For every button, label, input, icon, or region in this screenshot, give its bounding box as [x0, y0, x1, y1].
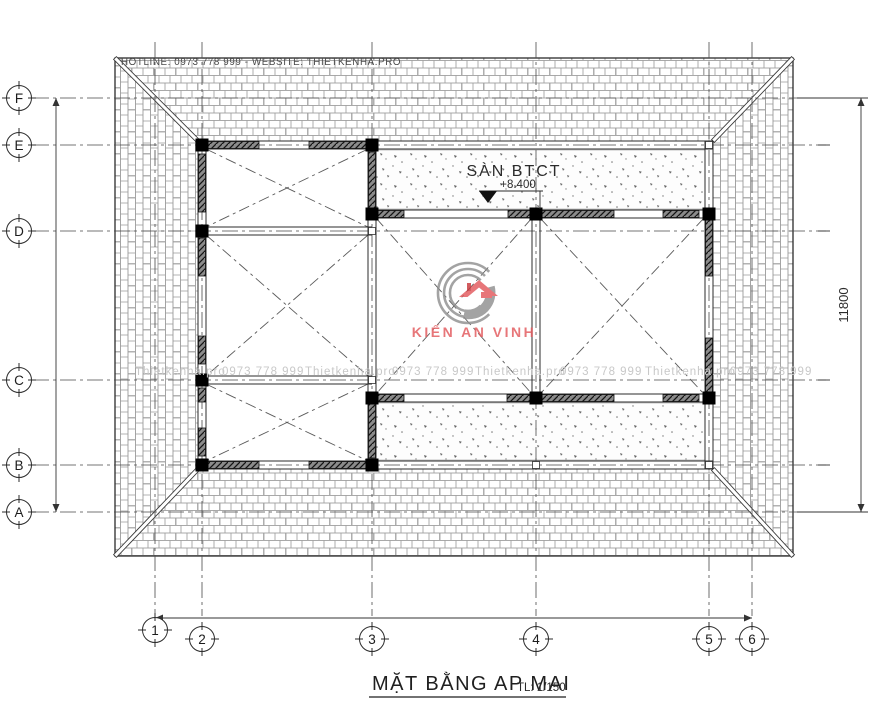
svg-text:E: E: [14, 138, 23, 153]
watermark-item: 0973 778 999: [730, 366, 812, 378]
grid-bubbles-cols: 1 2 3 4 5 6: [138, 613, 769, 656]
svg-text:B: B: [14, 458, 23, 473]
svg-text:6: 6: [748, 632, 756, 647]
plan-canvas: 11800 F E D C B A 1 2: [0, 0, 888, 710]
grid-bubble-col-6: 6: [735, 622, 769, 656]
watermark-item: Thietkenha.pro: [475, 366, 566, 378]
title-block: MẶT BẰNG AP MAI TL: 1/150: [369, 671, 570, 697]
svg-text:A: A: [14, 505, 23, 520]
grid-bubble-row-c: C: [2, 363, 36, 397]
grid-bubble-row-a: A: [2, 495, 36, 529]
logo-text: KIẾN AN VINH: [412, 324, 536, 340]
watermark-row: Thietkenha.pro 0973 778 999 Thietkenha.p…: [135, 366, 812, 378]
svg-text:3: 3: [368, 632, 376, 647]
watermark-item: 0973 778 999: [222, 366, 304, 378]
grid-bubble-col-5: 5: [692, 622, 726, 656]
grid-bubble-col-2: 2: [185, 622, 219, 656]
slab-elevation: +8.400: [500, 179, 536, 191]
concrete-slab-bottom: [376, 403, 705, 460]
svg-text:4: 4: [532, 632, 540, 647]
watermark-item: 0973 778 999: [392, 366, 474, 378]
grid-bubble-col-3: 3: [355, 622, 389, 656]
grid-bubbles-rows: F E D C B A: [2, 81, 36, 529]
svg-text:C: C: [14, 373, 24, 388]
grid-bubble-col-4: 4: [519, 622, 553, 656]
roof-slope-bottom: [115, 469, 793, 556]
watermark-item: 0973 778 999: [560, 366, 642, 378]
watermark-item: Thietkenha.pro: [645, 366, 736, 378]
svg-text:2: 2: [198, 632, 206, 647]
svg-text:F: F: [15, 91, 23, 106]
grid-bubble-row-d: D: [2, 214, 36, 248]
roof-slope-top: [115, 58, 793, 141]
slab-label: SÀN BTCT: [466, 161, 561, 180]
grid-bubble-row-f: F: [2, 81, 36, 115]
drawing-scale: TL: 1/150: [517, 682, 566, 694]
watermark-item: Thietkenha.pro: [135, 366, 226, 378]
grid-bubble-row-e: E: [2, 128, 36, 162]
grid-bubble-row-b: B: [2, 448, 36, 482]
svg-text:D: D: [14, 224, 24, 239]
svg-text:5: 5: [705, 632, 713, 647]
hotline-text: HOTLINE: 0973 778 999 - WEBSITE: THIETKE…: [121, 57, 401, 68]
svg-text:1: 1: [151, 623, 159, 638]
dim-value-vertical: 11800: [836, 287, 851, 322]
watermark-item: Thietkenha.pro: [305, 366, 396, 378]
roof-plan-drawing: 11800 F E D C B A 1 2: [0, 0, 888, 710]
